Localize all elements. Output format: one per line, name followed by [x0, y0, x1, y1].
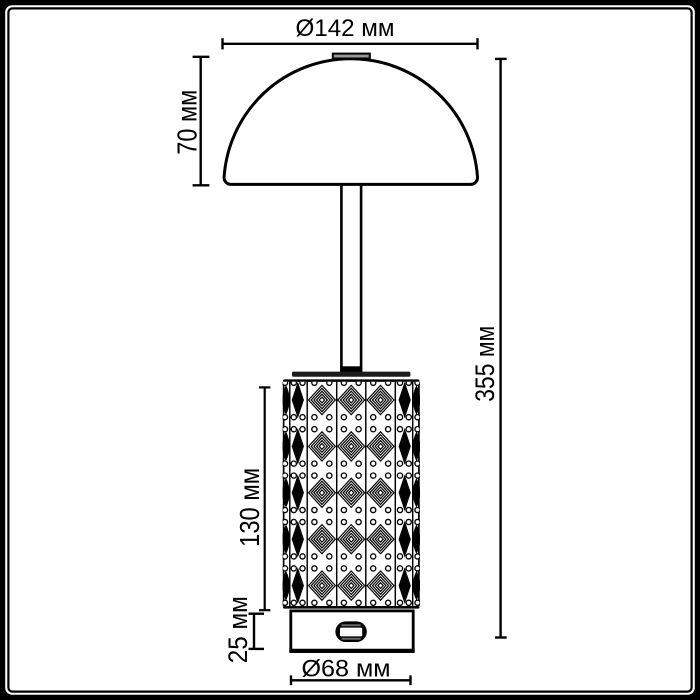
svg-text:Ø68 мм: Ø68 мм [302, 656, 391, 683]
svg-text:70 мм: 70 мм [172, 90, 203, 155]
svg-text:Ø142 мм: Ø142 мм [296, 15, 395, 42]
svg-text:130 мм: 130 мм [234, 468, 265, 547]
svg-text:355 мм: 355 мм [470, 326, 500, 402]
svg-text:25 мм: 25 мм [223, 596, 253, 663]
